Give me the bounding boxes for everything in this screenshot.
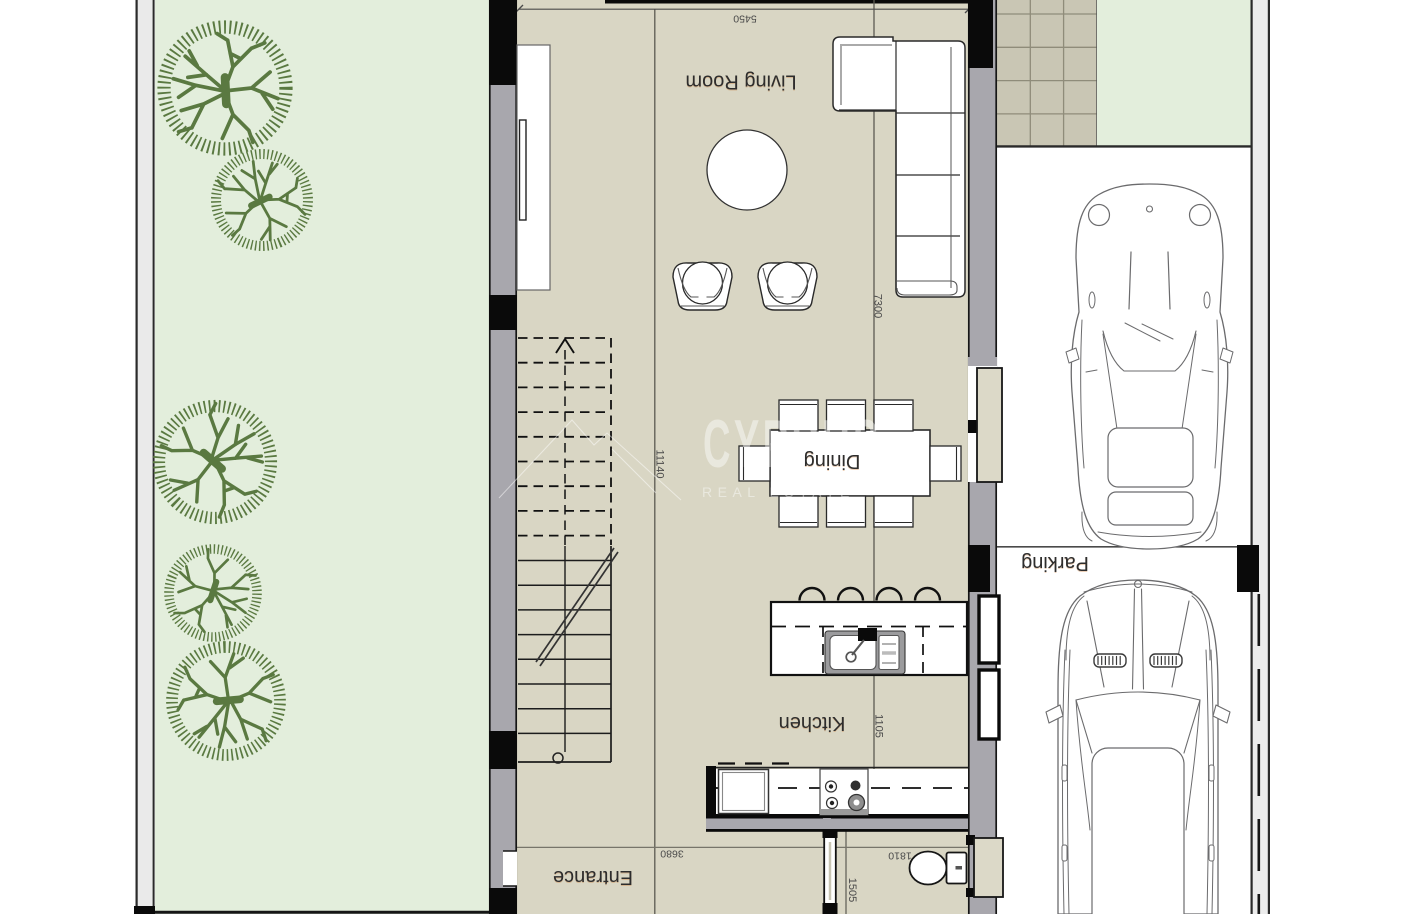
svg-text:1505: 1505: [846, 878, 858, 902]
svg-text:5450: 5450: [733, 13, 757, 25]
svg-text:7300: 7300: [872, 294, 884, 318]
svg-text:Parking: Parking: [1021, 552, 1089, 574]
svg-text:Living Room: Living Room: [685, 71, 796, 93]
svg-text:1810: 1810: [888, 850, 912, 862]
svg-text:11140: 11140: [654, 450, 666, 479]
svg-text:Kitchen: Kitchen: [779, 712, 846, 734]
svg-text:Dining: Dining: [804, 450, 861, 472]
svg-text:REAL ESTATE: REAL ESTATE: [702, 484, 855, 500]
svg-text:1105: 1105: [873, 714, 885, 738]
svg-text:3680: 3680: [660, 848, 684, 860]
svg-text:Entrance: Entrance: [553, 866, 633, 888]
